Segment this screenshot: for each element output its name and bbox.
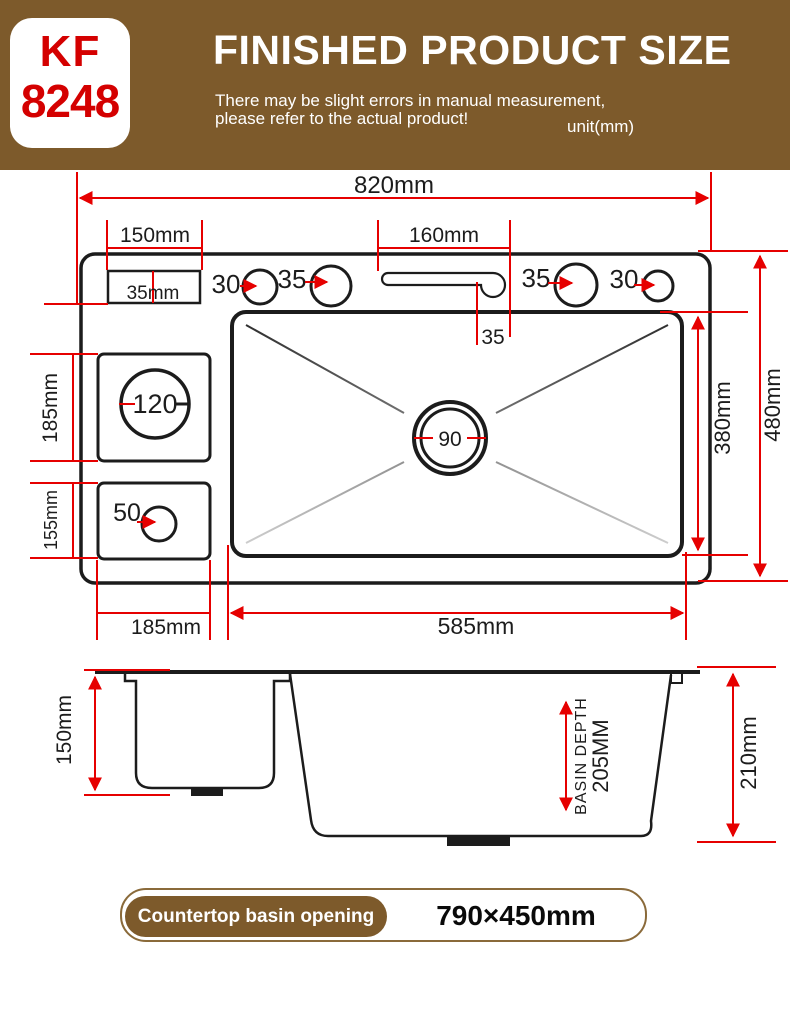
left-col-width-dim: 185mm — [131, 616, 201, 639]
hole-35-left-dim: 35 — [278, 264, 307, 294]
page: KF 8248 FINISHED PRODUCT SIZE There may … — [0, 0, 790, 1010]
side-left-depth-dim: 150mm — [53, 695, 76, 765]
waste-hole-dim: 120 — [132, 389, 177, 419]
side-view-small-basin — [125, 674, 290, 788]
main-basin-drain-stub — [447, 836, 510, 846]
hole-35-left-circle — [311, 266, 351, 306]
hole-35-right-circle — [555, 264, 597, 306]
footer-spec-value: 790×450mm — [390, 890, 642, 942]
hole-30-right-dim: 30 — [610, 264, 639, 294]
slot-width-dim: 160mm — [409, 224, 479, 247]
overall-width-dim: 820mm — [354, 172, 434, 199]
slot-offset-dim: 35 — [481, 326, 504, 349]
overall-depth-dim: 210mm — [736, 716, 761, 789]
upper-box-height-dim: 185mm — [39, 373, 62, 443]
drain-hole-dim: 90 — [438, 428, 461, 451]
footer-spec-label: Countertop basin opening — [125, 896, 387, 937]
hole-35-right-dim: 35 — [522, 263, 551, 293]
basin-width-dim: 585mm — [438, 613, 515, 639]
soap-plate-dim: 35mm — [127, 283, 180, 304]
basin-depth-value: 205MM — [588, 719, 613, 792]
hole-30-left-dim: 30 — [212, 269, 241, 299]
small-hole-dim: 50 — [113, 499, 141, 527]
dimension-diagram: 90 35mm 30 35 35 35 30 120 50 — [0, 0, 790, 1010]
faucet-slot-outline — [382, 273, 505, 297]
footer-spec-pill: Countertop basin opening 790×450mm — [120, 888, 647, 942]
small-basin-drain-stub — [191, 788, 223, 796]
lower-box-height-dim: 155mm — [41, 490, 61, 550]
overall-height-dim: 480mm — [760, 368, 785, 441]
side-view-main-basin — [290, 674, 671, 836]
plate-width-dim: 150mm — [120, 224, 190, 247]
basin-height-dim: 380mm — [710, 381, 735, 454]
small-hole-circle — [142, 507, 176, 541]
